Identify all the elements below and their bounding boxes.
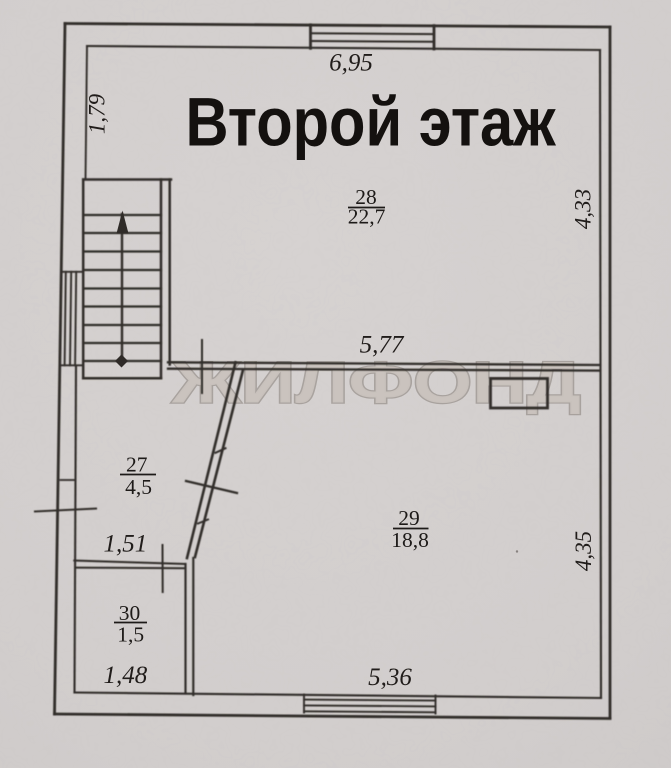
svg-text:5,36: 5,36: [368, 664, 412, 691]
svg-text:Второй этаж: Второй этаж: [186, 84, 557, 161]
svg-text:4,33: 4,33: [571, 189, 596, 229]
svg-text:ЖИЛФОНД: ЖИЛФОНД: [171, 351, 581, 416]
svg-text:27: 27: [126, 453, 148, 477]
svg-text:18,8: 18,8: [391, 528, 429, 552]
svg-text:1,5: 1,5: [117, 623, 144, 647]
svg-text:1,48: 1,48: [104, 662, 148, 689]
svg-text:4,5: 4,5: [125, 475, 152, 499]
svg-text:1,79: 1,79: [85, 93, 110, 134]
svg-text:6,95: 6,95: [329, 50, 373, 77]
svg-text:4,35: 4,35: [571, 531, 596, 571]
svg-text:5,77: 5,77: [360, 332, 405, 359]
svg-text:1,51: 1,51: [104, 531, 148, 558]
svg-text:29: 29: [398, 506, 420, 530]
svg-text:30: 30: [119, 601, 141, 625]
